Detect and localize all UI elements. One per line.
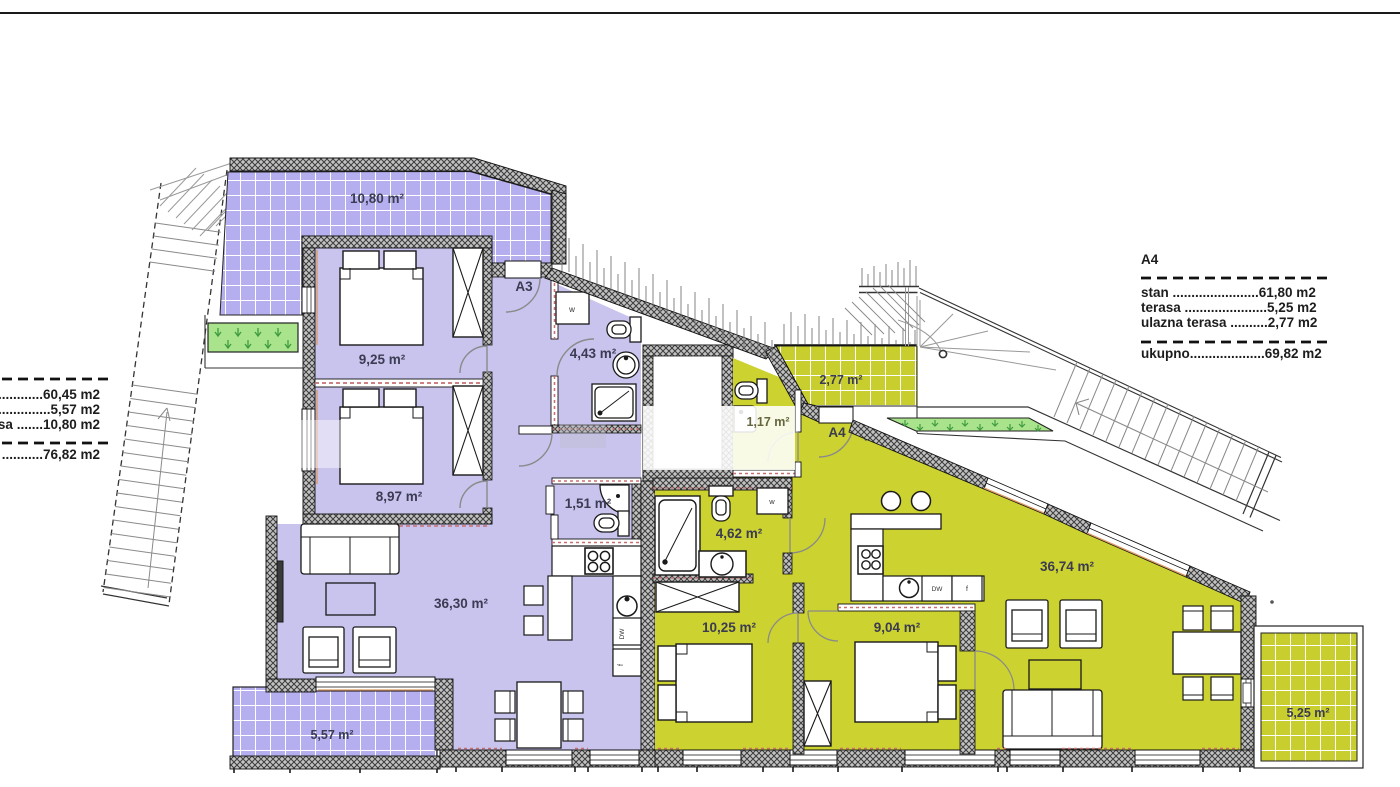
svg-text:A4: A4 <box>828 425 846 440</box>
svg-text:36,30 m²: 36,30 m² <box>434 596 489 611</box>
svg-text:w: w <box>568 305 575 314</box>
svg-text:A4: A4 <box>1141 252 1159 267</box>
svg-text:2,77 m²: 2,77 m² <box>819 373 862 387</box>
svg-text:4,43 m²: 4,43 m² <box>570 346 617 361</box>
svg-text:...........76,82 m2: ...........76,82 m2 <box>2 447 100 462</box>
svg-text:ulazna terasa ..........2,77 m: ulazna terasa ..........2,77 m2 <box>1141 315 1317 330</box>
svg-text:...............5,57 m2: ...............5,57 m2 <box>0 402 100 417</box>
svg-text:9,04 m²: 9,04 m² <box>874 620 921 635</box>
svg-text:9,25 m²: 9,25 m² <box>359 352 406 367</box>
svg-text:stan .......................61: stan .......................61,80 m2 <box>1141 285 1316 300</box>
svg-text:5,57 m²: 5,57 m² <box>310 728 353 742</box>
svg-text:36,74 m²: 36,74 m² <box>1040 559 1095 574</box>
svg-text:DW: DW <box>619 628 626 640</box>
svg-text:sa .......10,80 m2: sa .......10,80 m2 <box>0 417 100 432</box>
svg-text:8,97 m²: 8,97 m² <box>376 489 423 504</box>
svg-text:f: f <box>618 664 625 666</box>
svg-text:f: f <box>966 586 968 593</box>
svg-text:.............60,45 m2: .............60,45 m2 <box>0 387 100 402</box>
svg-text:terasa ......................5: terasa ......................5,25 m2 <box>1141 300 1317 315</box>
svg-text:A3: A3 <box>515 279 533 294</box>
svg-text:5,25 m²: 5,25 m² <box>1286 706 1329 720</box>
svg-text:DW: DW <box>932 586 944 593</box>
svg-text:10,80 m²: 10,80 m² <box>350 191 405 206</box>
svg-text:1,51 m²: 1,51 m² <box>565 496 612 511</box>
svg-text:w: w <box>768 497 775 506</box>
svg-text:1,17 m²: 1,17 m² <box>746 415 789 429</box>
svg-text:10,25 m²: 10,25 m² <box>702 620 757 635</box>
svg-text:4,62 m²: 4,62 m² <box>716 526 763 541</box>
svg-text:ukupno....................69,8: ukupno....................69,82 m2 <box>1141 346 1322 361</box>
